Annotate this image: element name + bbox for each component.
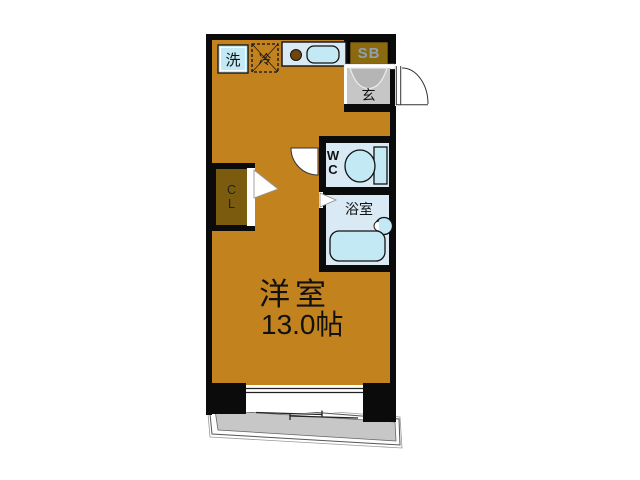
shoe-box: SB [349,41,389,65]
kitchen-counter [282,42,346,66]
toilet-label-line1: W [327,148,340,163]
toilet-bowl-icon [345,150,375,182]
burner-icon [291,50,302,61]
shoe-box-label: SB [358,45,381,62]
floorplan-drawing: 洗 冷 SB 玄 W [0,0,640,480]
entrance-area: 玄 [344,64,428,112]
toilet-label-line2: C [328,162,338,177]
bathtub-icon [330,231,385,261]
toilet-tank-icon [374,147,387,184]
closet-label-line2: L [228,197,235,211]
main-room-name: 洋室 [259,277,331,312]
entrance-label: 玄 [362,87,376,103]
bathroom-label: 浴室 [345,201,373,217]
refrigerator-label: 冷 [258,52,271,67]
entrance-door-swing [395,64,428,106]
closet-label-line1: C [227,183,236,197]
bathroom-room: 浴室 [319,188,396,272]
sink-icon [307,46,339,63]
wall-entrance-bottom [344,104,396,112]
washing-machine-label: 洗 [225,52,240,69]
floorplan-canvas: 洗 冷 SB 玄 W [0,0,640,480]
main-room-size: 13.0帖 [261,309,344,340]
wall-top [206,34,396,40]
washing-machine-box: 洗 [218,45,248,73]
